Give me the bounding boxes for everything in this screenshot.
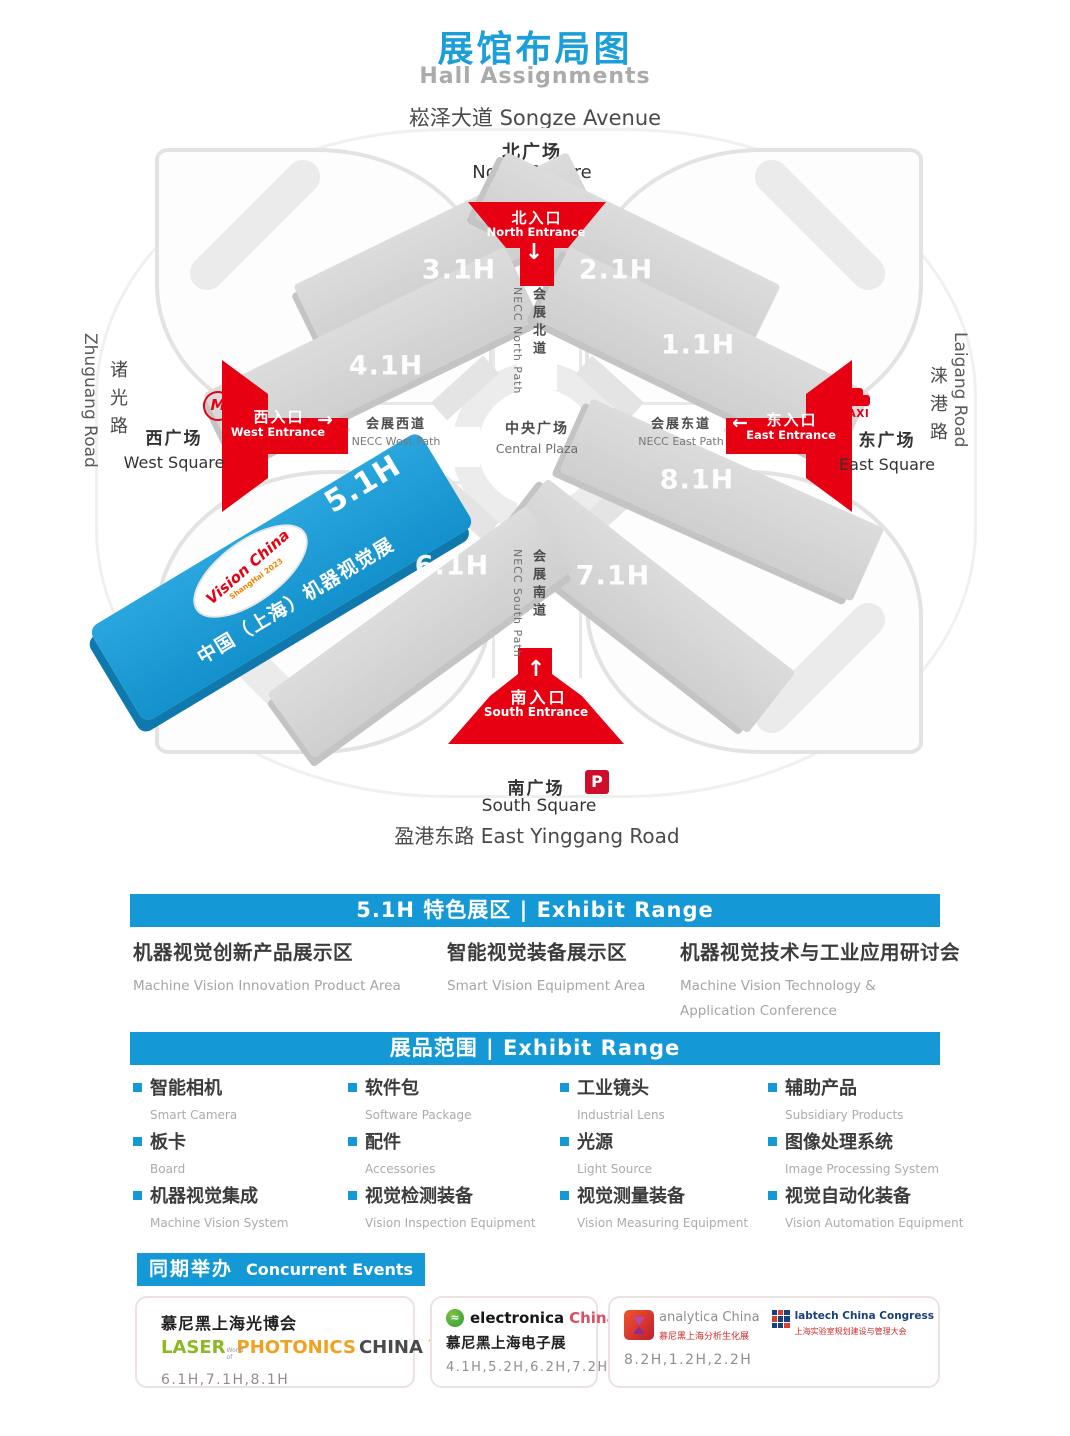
event-card-laser-photonics: 慕尼黑上海光博会 LASERWorld ofPHOTONICSCHINA ++ …	[135, 1296, 415, 1388]
range-item: 辅助产品 Subsidiary Products	[768, 1074, 980, 1122]
event-3-halls: 8.2H,1.2H,2.2H	[624, 1352, 938, 1368]
hall-label-7-1H: 7.1H	[576, 561, 650, 592]
taxi-icon-body	[840, 395, 870, 406]
central-plaza-zh: 中央广场	[473, 418, 601, 438]
south-square-en: South Square	[482, 796, 597, 816]
necc-south-path-en: NECC South Path	[511, 549, 524, 658]
bullet-icon	[133, 1083, 142, 1092]
range-section-banner: 展品范围 | Exhibit Range	[130, 1032, 940, 1065]
central-plaza-label: 中央广场 Central Plaza	[473, 418, 601, 456]
range-item: 视觉测量装备 Vision Measuring Equipment	[560, 1182, 772, 1230]
bullet-icon	[348, 1137, 357, 1146]
bullet-icon	[348, 1083, 357, 1092]
feature-item-1-en: Machine Vision Innovation Product Area	[133, 974, 438, 999]
bullet-icon	[768, 1083, 777, 1092]
parking-icon: P	[585, 770, 609, 794]
taxi-icon-roof	[847, 388, 863, 395]
event-card-analytica-labtech: analytica China 慕尼黑上海分析生化展 labtech China…	[608, 1296, 940, 1388]
feature-item-3-zh: 机器视觉技术与工业应用研讨会	[680, 936, 942, 965]
events-banner-zh: 同期举办	[149, 1258, 233, 1280]
bullet-icon	[133, 1137, 142, 1146]
west-square-en: West Square	[108, 453, 240, 472]
range-item: 机器视觉集成 Machine Vision System	[133, 1182, 345, 1230]
range-item: 智能相机 Smart Camera	[133, 1074, 345, 1122]
bullet-icon	[560, 1137, 569, 1146]
events-section-banner: 同期举办Concurrent Events	[137, 1253, 425, 1286]
event-2-halls: 4.1H,5.2H,6.2H,7.2H	[446, 1360, 596, 1375]
necc-north-path-en: NECC North Path	[511, 287, 524, 394]
event-1-halls: 6.1H,7.1H,8.1H	[161, 1372, 413, 1388]
feature-item-1-zh: 机器视觉创新产品展示区	[133, 936, 438, 965]
bullet-icon	[768, 1191, 777, 1200]
metro-icon: M	[203, 391, 233, 421]
range-item: 配件 Accessories	[348, 1128, 560, 1176]
hall-assignments-poster: 展馆布局图 Hall Assignments 崧泽大道 Songze Avenu…	[0, 0, 1070, 1436]
event-1-title-zh: 慕尼黑上海光博会	[161, 1310, 413, 1334]
events-banner-en: Concurrent Events	[246, 1260, 413, 1279]
page-subtitle: Hall Assignments	[419, 64, 650, 89]
feature-item-3-en: Machine Vision Technology & Application …	[680, 974, 895, 1024]
hall-label-4-1H: 4.1H	[349, 351, 423, 382]
west-entrance-label-en: West Entrance	[231, 425, 325, 439]
hall-label-6-1H: 6.1H	[415, 551, 489, 582]
road-laigang-en: Laigang Road	[950, 332, 970, 447]
bullet-icon	[348, 1191, 357, 1200]
necc-east-path-en: NECC East Path	[626, 435, 736, 448]
necc-west-path-label: 会展西道 NECC West Path	[341, 413, 451, 448]
range-item: 软件包 Software Package	[348, 1074, 560, 1122]
hall-label-8-1H: 8.1H	[660, 465, 734, 496]
bullet-icon	[560, 1191, 569, 1200]
range-item: 板卡 Board	[133, 1128, 345, 1176]
event-card-electronica: ≈ electronica China 慕尼黑上海电子展 4.1H,5.2H,6…	[430, 1296, 598, 1388]
east-entrance-label-zh: 东入口	[766, 409, 817, 430]
feature-item-2-zh: 智能视觉装备展示区	[447, 936, 687, 965]
labtech-name-zh: 上海实验室规划建设与管理大会	[795, 1326, 934, 1337]
feature-item-1: 机器视觉创新产品展示区 Machine Vision Innovation Pr…	[133, 936, 438, 999]
analytica-icon	[624, 1310, 654, 1340]
range-item: 视觉检测装备 Vision Inspection Equipment	[348, 1182, 560, 1230]
road-yinggang: 盈港东路 East Yinggang Road	[394, 820, 679, 849]
electronica-wave-icon: ≈	[446, 1309, 464, 1327]
bullet-icon	[560, 1083, 569, 1092]
south-entrance-arrow-icon: ↑	[527, 657, 545, 682]
labtech-logo: labtech China Congress 上海实验室规划建设与管理大会	[772, 1310, 934, 1337]
necc-west-path-zh: 会展西道	[341, 413, 451, 432]
feature-section-banner: 5.1H 特色展区 | Exhibit Range	[130, 894, 940, 927]
range-item: 图像处理系统 Image Processing System	[768, 1128, 980, 1176]
west-entrance-label-zh: 西入口	[253, 406, 304, 427]
feature-item-2-en: Smart Vision Equipment Area	[447, 974, 687, 999]
necc-east-path-label: 会展东道 NECC East Path	[626, 413, 736, 448]
range-item: 工业镜头 Industrial Lens	[560, 1074, 772, 1122]
labtech-icon	[772, 1310, 790, 1328]
taxi-icon-label: TAXI	[836, 408, 874, 420]
road-zhuguang-zh: 诸光路	[104, 360, 130, 444]
labtech-name: labtech China Congress	[795, 1310, 934, 1322]
range-item: 视觉自动化装备 Vision Automation Equipment	[768, 1182, 980, 1230]
necc-north-path-zh: 会展北道	[528, 287, 547, 394]
event-2-title-zh: 慕尼黑上海电子展	[446, 1332, 596, 1353]
north-entrance-label-en: North Entrance	[487, 225, 586, 239]
feature-item-2: 智能视觉装备展示区 Smart Vision Equipment Area	[447, 936, 687, 999]
necc-east-path-zh: 会展东道	[626, 413, 736, 432]
analytica-name-zh: 慕尼黑上海分析生化展	[659, 1329, 760, 1342]
taxi-icon: TAXI	[836, 388, 874, 420]
bullet-icon	[133, 1191, 142, 1200]
electronica-logo: ≈ electronica China	[446, 1309, 596, 1327]
north-entrance-arrow-icon: ↓	[525, 240, 543, 265]
central-plaza-en: Central Plaza	[473, 441, 601, 456]
laser-photonics-logo: LASERWorld ofPHOTONICSCHINA ++	[161, 1337, 413, 1363]
east-square-en: East Square	[822, 455, 952, 474]
hall-label-1-1H: 1.1H	[661, 330, 735, 361]
west-entrance-arrow-icon: →	[317, 409, 333, 431]
necc-south-path-zh: 会展南道	[528, 549, 547, 658]
bullet-icon	[768, 1137, 777, 1146]
south-entrance-label-en: South Entrance	[484, 705, 588, 719]
feature-item-3: 机器视觉技术与工业应用研讨会 Machine Vision Technology…	[680, 936, 942, 1024]
road-zhuguang-en: Zhuguang Road	[80, 333, 100, 468]
necc-north-path-label: NECC North Path 会展北道	[511, 287, 547, 394]
range-item: 光源 Light Source	[560, 1128, 772, 1176]
road-laigang-zh: 涞港路	[924, 366, 950, 450]
necc-south-path-label: NECC South Path 会展南道	[511, 549, 547, 658]
necc-west-path-en: NECC West Path	[341, 435, 451, 448]
analytica-logo: analytica China 慕尼黑上海分析生化展	[624, 1310, 760, 1342]
analytica-name: analytica China	[659, 1310, 760, 1325]
